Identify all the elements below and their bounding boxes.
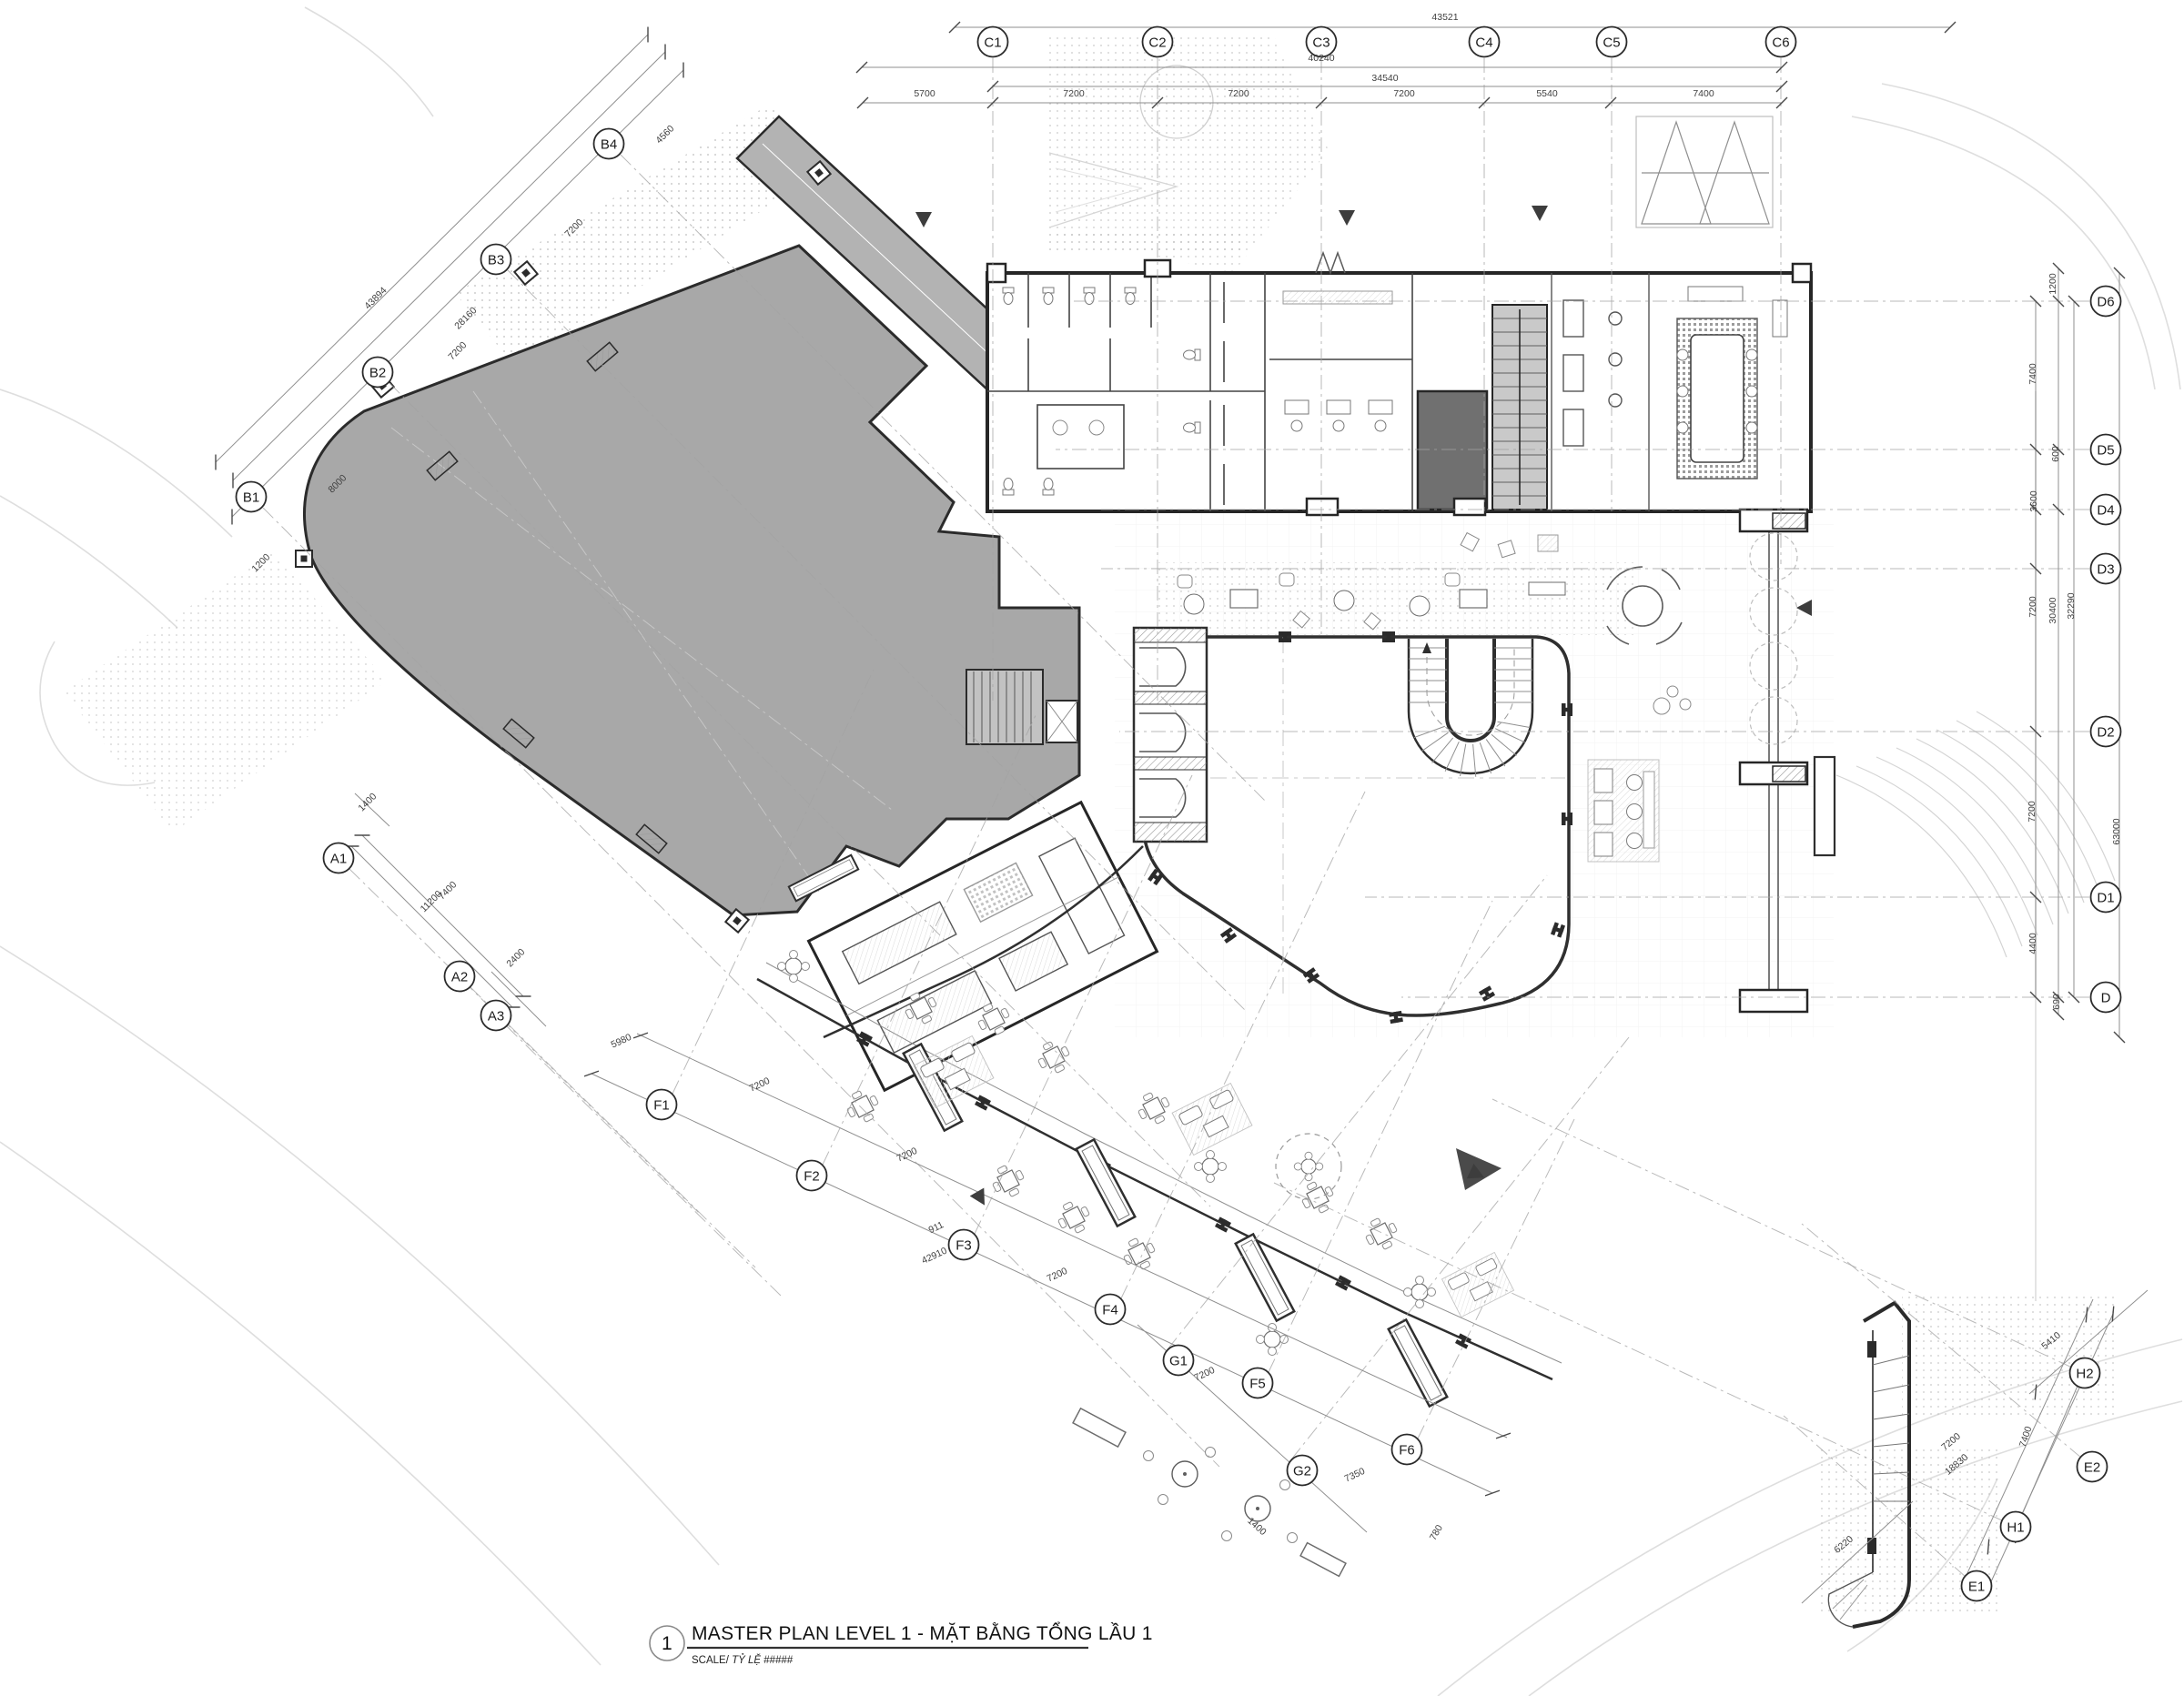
roof-hatch-deck: [1636, 116, 1773, 227]
grid-bubble-f1: F1: [647, 1090, 677, 1120]
grid-bubble-label: D4: [2097, 503, 2114, 519]
dimension-label: 7350: [1343, 1466, 1367, 1485]
grid-bubble-c2: C2: [1143, 27, 1173, 57]
dimension-label: 690: [2051, 994, 2062, 1010]
dimension-label: 40240: [1308, 53, 1334, 64]
dimension-label: 7200: [2027, 801, 2037, 823]
grid-bubble-label: D3: [2097, 562, 2114, 578]
grid-bubble-label: F6: [1399, 1443, 1415, 1459]
arched-niches: [1134, 628, 1207, 842]
grid-bubble-label: E1: [1968, 1580, 1985, 1595]
section-marker: [1532, 206, 1548, 221]
dimension-label: 32290: [2066, 592, 2077, 619]
grid-bubble-label: H1: [2007, 1520, 2024, 1536]
grid-bubble-label: F1: [653, 1098, 670, 1114]
grid-bubble-label: F4: [1102, 1303, 1118, 1318]
elevator-core: [1418, 391, 1487, 510]
drawing-title: MASTER PLAN LEVEL 1 - MẶT BẰNG TỔNG LẦU …: [692, 1622, 1153, 1644]
grid-bubble-c5: C5: [1597, 27, 1627, 57]
dimension-label: 34540: [1371, 73, 1398, 84]
dimension-label: 1200: [2047, 273, 2058, 295]
grid-bubble-label: F5: [1249, 1377, 1266, 1392]
grid-bubble-f4: F4: [1096, 1295, 1126, 1325]
grid-bubble-label: C4: [1475, 35, 1492, 51]
dimension-label: 5700: [914, 88, 935, 99]
bar-cluster: [1073, 1408, 1346, 1576]
grid-bubble-b4: B4: [594, 129, 624, 159]
grid-bubble-label: D6: [2097, 295, 2114, 310]
grid-bubble-label: B2: [369, 366, 386, 381]
amphitheatre-steps: [1836, 712, 2115, 957]
floor-plan-sheet: C1C2C3C4C5C6B4B3B2B1A1A2A3F1F2F3F4F5F6G1…: [0, 0, 2184, 1696]
grid-bubble-label: D1: [2097, 891, 2114, 906]
dimension-label: 7200: [1228, 88, 1249, 99]
dimension-label: 7200: [748, 1075, 772, 1095]
grid-bubble-label: G1: [1169, 1354, 1188, 1369]
section-marker: [915, 212, 932, 227]
grid-bubble-label: H2: [2076, 1367, 2093, 1382]
dimension-label: 1400: [356, 791, 379, 813]
dimension-label: 63000: [2111, 818, 2122, 844]
grid-bubble-d: D: [2091, 983, 2121, 1013]
dimension-label: 7200: [1046, 1266, 1069, 1285]
dimension-label: 7400: [2027, 363, 2038, 385]
dimension-label: 30400: [2047, 597, 2058, 623]
grid-bubble-b3: B3: [481, 245, 511, 275]
grid-bubble-label: C3: [1312, 35, 1330, 51]
bar-counter: [1815, 757, 1835, 855]
grid-bubble-b2: B2: [363, 358, 393, 388]
scale-line: SCALE/ TỶ LỆ #####: [692, 1654, 794, 1666]
grid-bubble-label: C2: [1148, 35, 1166, 51]
dimension-label: 7400: [2017, 1425, 2035, 1449]
dimension-label: 7200: [1193, 1365, 1217, 1384]
upper-terrace-band: [1154, 562, 1636, 635]
grid-bubble-a1: A1: [324, 843, 354, 873]
grid-bubble-label: F3: [955, 1238, 972, 1254]
pointed-planter: [1456, 1148, 1501, 1190]
grid-bubble-label: C5: [1603, 35, 1620, 51]
grid-bubble-label: A3: [488, 1009, 504, 1025]
dimension-label: 7200: [1393, 88, 1415, 99]
grid-bubble-c1: C1: [978, 27, 1008, 57]
grid-bubble-g2: G2: [1288, 1456, 1318, 1486]
grid-bubble-d1: D1: [2091, 883, 2121, 913]
grid-bubble-label: F2: [804, 1169, 820, 1185]
dimension-label: 42910: [920, 1246, 949, 1267]
grid-bubble-h1: H1: [2001, 1512, 2031, 1542]
grid-bubble-b1: B1: [237, 482, 267, 512]
grid-bubble-g1: G1: [1164, 1346, 1194, 1376]
dimension-label: 28160: [452, 305, 479, 331]
detail-number: 1: [662, 1633, 672, 1654]
floor-plan-drawing: C1C2C3C4C5C6B4B3B2B1A1A2A3F1F2F3F4F5F6G1…: [0, 0, 2184, 1696]
dimension-label: 7400: [1693, 88, 1714, 99]
dimension-label: 2400: [504, 946, 527, 969]
grid-bubble-h2: H2: [2070, 1358, 2100, 1388]
grid-bubble-e1: E1: [1962, 1571, 1992, 1601]
lobby-lounge-group: [1588, 760, 1659, 862]
grid-bubble-label: G2: [1293, 1464, 1311, 1479]
dimension-label: 5980: [610, 1032, 633, 1051]
dimension-label: 7200: [2027, 596, 2038, 618]
section-marker: [1339, 210, 1355, 226]
top-wing: [987, 253, 1811, 515]
grid-bubble-label: E2: [2084, 1460, 2100, 1476]
grid-bubble-e2: E2: [2078, 1452, 2108, 1482]
grid-bubble-label: A1: [330, 852, 347, 867]
dimension-label: 4560: [653, 123, 676, 146]
section-marker: [970, 1187, 992, 1209]
dimension-label: 780: [1428, 1523, 1445, 1542]
dimension-label: 5540: [1536, 88, 1558, 99]
grid-bubble-label: C1: [984, 35, 1001, 51]
title-block: 1 MASTER PLAN LEVEL 1 - MẶT BẰNG TỔNG LẦ…: [650, 1622, 1153, 1666]
grid-bubble-d6: D6: [2091, 287, 2121, 317]
grid-bubble-d5: D5: [2091, 435, 2121, 465]
dimension-label: 7200: [446, 339, 469, 362]
grid-bubble-f6: F6: [1392, 1435, 1422, 1465]
grid-bubble-label: A2: [451, 970, 468, 985]
dimension-label: 7200: [1063, 88, 1085, 99]
grid-bubble-label: B3: [488, 253, 504, 268]
dimension-label: 43521: [1431, 12, 1458, 23]
grid-bubble-f2: F2: [797, 1161, 827, 1191]
grid-bubble-c4: C4: [1470, 27, 1500, 57]
grid-bubble-d4: D4: [2091, 495, 2121, 525]
dimension-label: 3600: [2028, 490, 2039, 512]
grid-bubble-label: C6: [1772, 35, 1789, 51]
grid-bubble-d2: D2: [2091, 717, 2121, 747]
dimension-label: 4400: [2027, 933, 2038, 954]
grid-bubble-label: B4: [601, 137, 617, 153]
dimension-label: 911: [927, 1219, 945, 1236]
dimension-label: 43894: [362, 285, 389, 311]
dimension-label: 600: [2050, 446, 2061, 462]
grid-bubble-d3: D3: [2091, 554, 2121, 584]
main-stair: [1492, 305, 1547, 510]
grid-bubble-label: B1: [243, 490, 259, 506]
grid-bubble-label: D5: [2097, 443, 2114, 459]
grid-bubble-c6: C6: [1766, 27, 1796, 57]
grid-bubble-a3: A3: [481, 1001, 511, 1031]
feature-u-stair: [1409, 639, 1532, 777]
grid-bubble-f5: F5: [1243, 1368, 1273, 1398]
grid-bubble-label: D2: [2097, 725, 2114, 741]
grid-bubble-a2: A2: [445, 962, 475, 992]
grid-bubble-label: D: [2101, 991, 2111, 1006]
grid-bubble-f3: F3: [949, 1230, 979, 1260]
